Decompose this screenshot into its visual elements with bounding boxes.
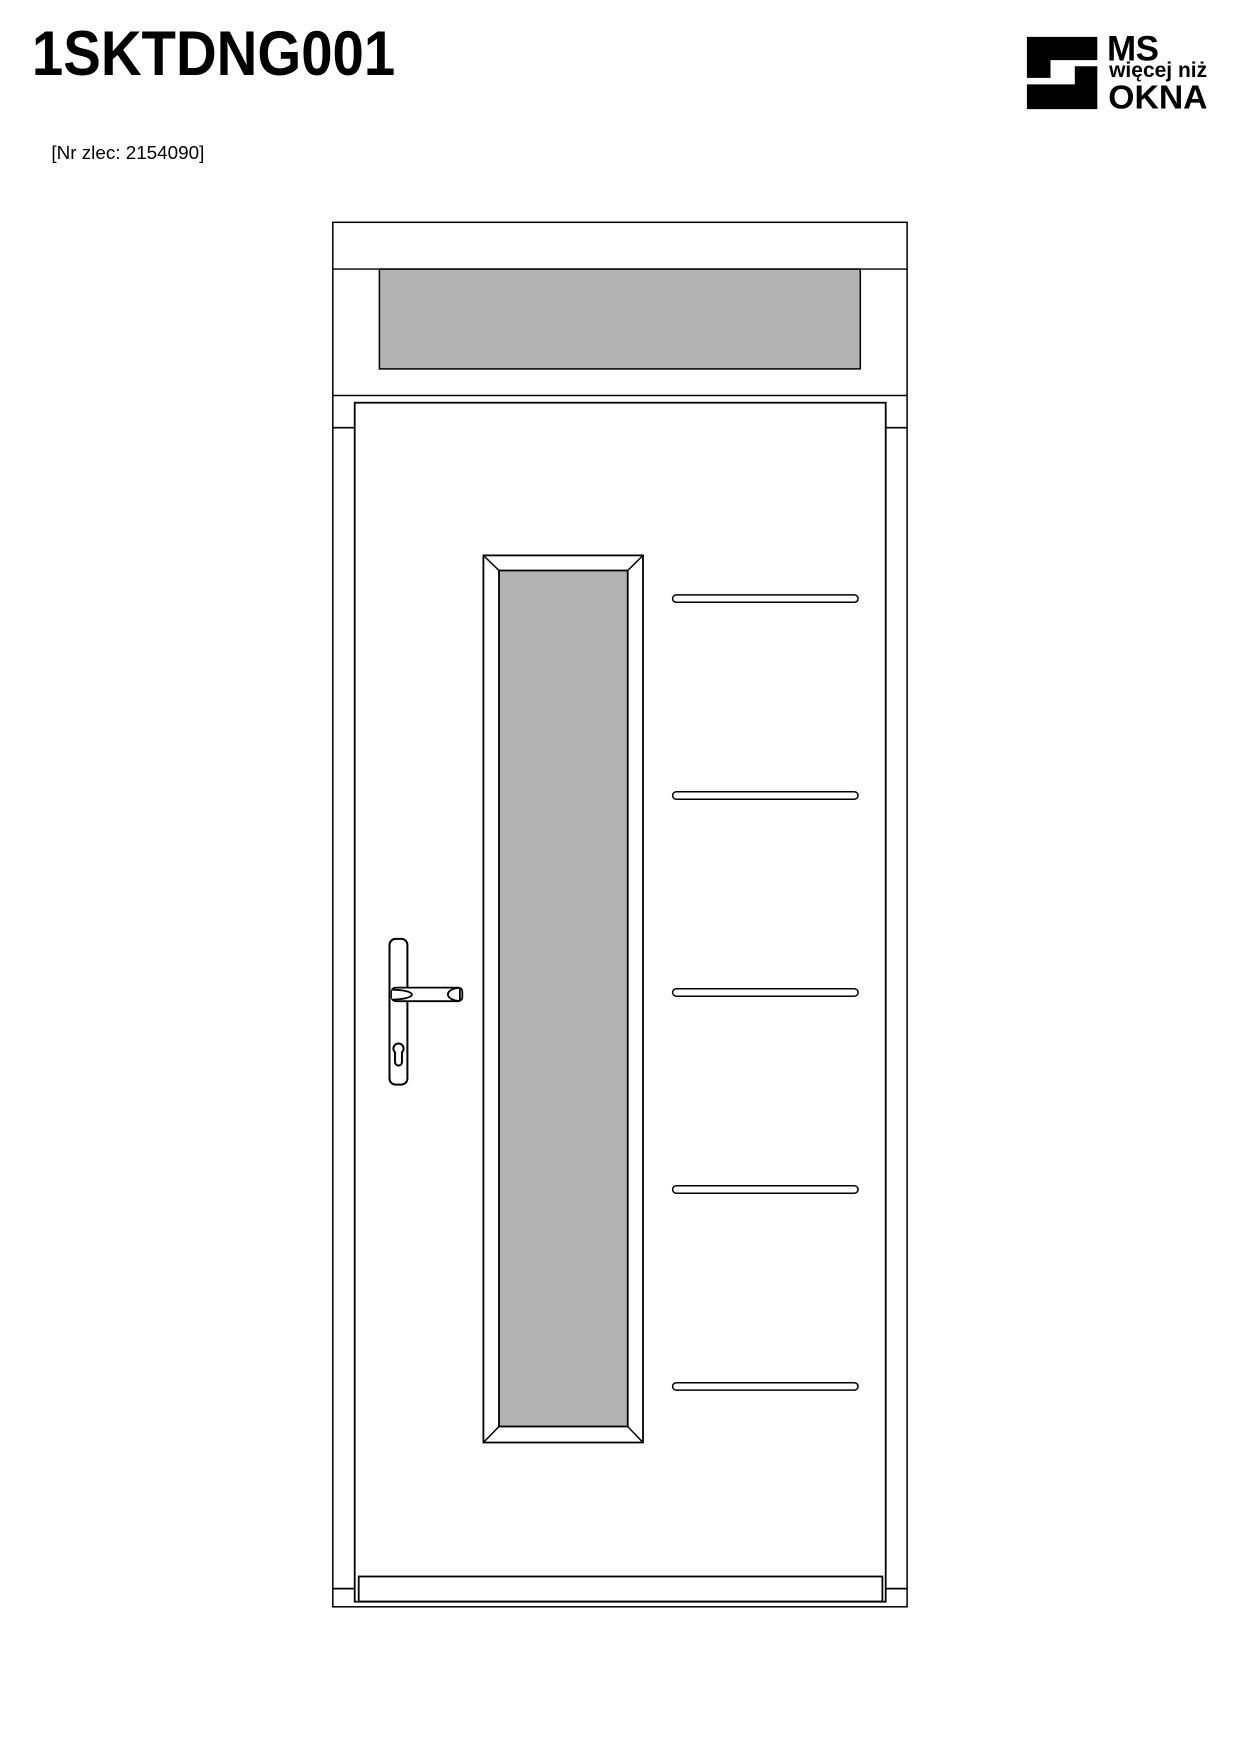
svg-text:1SKTDNG001: 1SKTDNG001 bbox=[32, 18, 395, 89]
svg-text:OKNA: OKNA bbox=[1108, 78, 1207, 116]
svg-text:[Nr zlec: 2154090]: [Nr zlec: 2154090] bbox=[51, 142, 204, 163]
